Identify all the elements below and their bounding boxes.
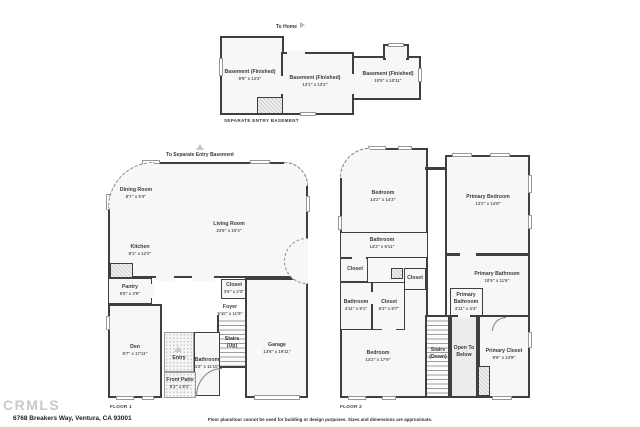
- window-marker: [528, 332, 532, 348]
- floor2-closet-center: [404, 268, 426, 290]
- door-gap: [370, 292, 374, 304]
- basement-caption: SEPARATE ENTRY BASEMENT: [224, 118, 299, 123]
- door-gap: [460, 252, 476, 257]
- window-marker: [306, 196, 310, 212]
- door-gap: [458, 314, 470, 318]
- arrow-up-icon: [196, 144, 204, 150]
- window-marker: [398, 146, 412, 150]
- door-gap: [408, 328, 422, 332]
- door-gap: [280, 76, 285, 94]
- floor2-caption: FLOOR 2: [340, 404, 362, 409]
- floor1-garage: [245, 278, 308, 398]
- window-marker: [490, 153, 510, 157]
- window-marker: [528, 175, 532, 193]
- basement-room-center: [281, 52, 354, 115]
- window-marker: [388, 43, 404, 47]
- door-gap: [352, 256, 366, 260]
- arrow-right-icon: [300, 22, 305, 28]
- to-home-label: To Home: [276, 24, 297, 30]
- door-gap: [219, 313, 245, 317]
- floor2-open-to-below: [450, 315, 478, 398]
- window-marker: [106, 316, 110, 330]
- bay-window-curve: [340, 148, 370, 178]
- door-gap: [386, 56, 406, 60]
- to-home-link: To Home: [276, 22, 305, 30]
- crmls-logo: CRMLS: [3, 397, 60, 413]
- hatch-box: [478, 366, 490, 396]
- kitchen-counter-hatch: [110, 263, 133, 278]
- window-marker: [116, 396, 134, 400]
- window-marker: [452, 153, 472, 157]
- arrow-up-icon: [174, 346, 182, 352]
- floor1-pantry: [108, 278, 152, 304]
- floor1-stairs: [217, 315, 247, 368]
- floor1-closet: [221, 279, 247, 299]
- window-marker: [300, 112, 316, 116]
- bay-window-curve: [108, 162, 154, 208]
- door-gap: [156, 276, 174, 281]
- floor2-bathroom-strip: [340, 232, 428, 258]
- window-marker: [219, 58, 223, 76]
- to-basement-link: To Separate Entry Basement: [165, 152, 235, 159]
- window-marker: [382, 396, 396, 400]
- disclaimer-text: Floor plans/tour cannot be used for buil…: [205, 417, 435, 422]
- wall-segment: [425, 167, 447, 170]
- window-marker: [492, 396, 512, 400]
- floor2-stairs: [425, 315, 450, 398]
- door-gap: [192, 276, 214, 281]
- window-marker: [338, 216, 342, 230]
- window-marker: [528, 215, 532, 229]
- door-gap: [351, 74, 356, 94]
- garage-door-marker: [254, 395, 300, 400]
- door-gap-to-home: [287, 50, 305, 55]
- property-address: 6768 Breakers Way, Ventura, CA 93001: [13, 415, 132, 422]
- floor2-closet-upper-left: [340, 258, 368, 282]
- window-marker: [368, 146, 386, 150]
- basement-stoop-hatch: [257, 97, 283, 114]
- floor1-front-patio-area: [164, 372, 196, 398]
- basement-room-right: [352, 56, 421, 100]
- bay-window-curve: [284, 162, 308, 186]
- window-marker: [250, 160, 270, 164]
- hatch-box: [391, 268, 403, 279]
- floor1-caption: FLOOR 1: [110, 404, 132, 409]
- window-marker: [418, 68, 422, 82]
- door-gap: [150, 284, 154, 298]
- floor1-den: [108, 304, 162, 398]
- floorplan-page: To Home Basement (Finished) 8'9" x 13'2"…: [0, 0, 640, 427]
- floor2-closet-mid: [372, 282, 405, 330]
- floor1-entry-area: [164, 332, 194, 372]
- floor2-bathroom-small: [340, 282, 372, 330]
- wall-segment: [445, 253, 530, 256]
- window-marker: [348, 396, 366, 400]
- window-marker: [142, 396, 154, 400]
- door-gap: [382, 328, 396, 332]
